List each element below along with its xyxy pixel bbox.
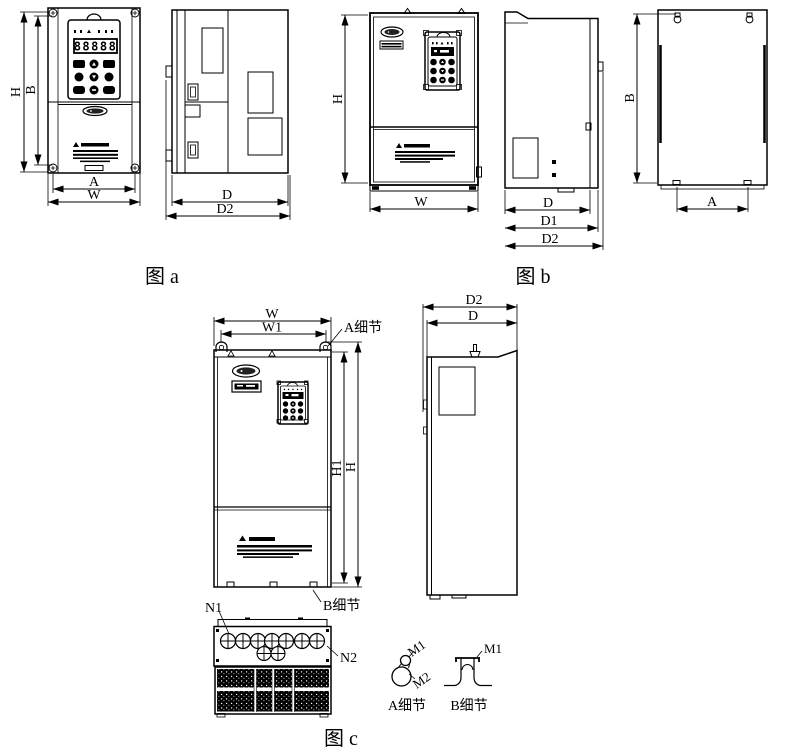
dimension-drawing-page: 88888: [0, 0, 788, 754]
dim-label-h1: H1: [330, 459, 345, 476]
inverter-dimension-drawing: 88888: [0, 0, 788, 754]
warning-triangle-icon: [239, 536, 246, 542]
warning-triangle-icon: [73, 142, 79, 147]
dim-label-a: A: [707, 195, 718, 210]
mounting-tab: [166, 150, 172, 161]
status-led-row: [74, 30, 113, 34]
dim-label-b: B: [24, 85, 39, 94]
keypad-buttons: [283, 401, 303, 420]
dim-label-h: H: [9, 87, 24, 97]
terminal-block: [215, 667, 331, 717]
dim-label-h: H: [331, 94, 346, 104]
gland-label-n1: N1: [205, 601, 222, 616]
dim-b-front-W: W: [370, 192, 478, 212]
figure-c-side-view: D2 D: [423, 293, 517, 599]
detail-b-caption: B细节: [450, 698, 487, 714]
brand-logo: [83, 107, 107, 116]
gland-label-n2: N2: [340, 651, 357, 666]
keypad: 88888: [68, 14, 120, 99]
brand-logo: [233, 365, 260, 377]
side-label-plate: [248, 72, 273, 113]
keypad-buttons: [430, 59, 455, 84]
keypad: [424, 31, 462, 91]
display-digits: 88888: [74, 40, 118, 54]
vent-grille: [202, 28, 223, 73]
dim-label-w: W: [414, 195, 428, 210]
mounting-tab: [166, 66, 172, 77]
detail-a-caption: A细节: [388, 698, 426, 714]
dim-label-h: H: [344, 462, 359, 472]
heatsink-grille: [439, 367, 475, 415]
figure-c-front-view: W W1 A细节 H1 H B细节: [214, 307, 382, 614]
warning-label: [73, 142, 118, 162]
dim-c-front-W1: W1: [221, 321, 326, 344]
keyhole-mount: [674, 13, 681, 23]
warning-label: [237, 536, 312, 558]
dim-b-back-A: A: [677, 187, 748, 212]
detail-b-callout: B细节: [323, 598, 360, 614]
dim-label-d: D: [222, 188, 232, 203]
detail-a-callout: A细节: [344, 320, 382, 336]
dim-label-b: B: [623, 93, 638, 102]
detail-a-keyhole: M1 M2 A细节: [388, 637, 433, 714]
dim-label-d: D: [543, 196, 553, 211]
keyhole-mount: [746, 13, 753, 23]
nameplate: [380, 41, 403, 49]
vent-grille: [513, 138, 538, 178]
figure-c-bottom-view: N1 N2: [205, 601, 357, 717]
n2-leader-line: [327, 646, 338, 656]
side-port: [188, 142, 198, 158]
warning-triangle-icon: [396, 143, 402, 148]
keypad: [277, 381, 308, 424]
dim-b-back-B: B: [623, 14, 676, 183]
detail-a-leader-line: [328, 329, 342, 346]
figure-a-caption: 图 a: [145, 266, 179, 288]
side-port: [188, 84, 198, 100]
lifting-eye: [470, 345, 480, 358]
dim-c-side-D: D: [427, 309, 517, 357]
warning-label: [395, 143, 455, 163]
brand-logo: [381, 27, 403, 37]
cable-glands: [221, 634, 325, 661]
figure-b-side-view: D D1 D2: [505, 12, 603, 250]
detail-b-leader-line: [313, 590, 321, 602]
figure-a-side-view: D D2: [166, 10, 290, 220]
dim-label-d: D: [468, 309, 478, 324]
detail-b-label-m1: M1: [484, 641, 502, 656]
figure-b: H W D: [331, 9, 767, 289]
dim-label-w: W: [87, 188, 101, 203]
figure-c-caption: 图 c: [324, 728, 358, 750]
keypad-buttons: [73, 60, 115, 95]
bottom-port-cover: [85, 166, 103, 171]
figure-b-front-view: H W: [331, 9, 482, 213]
vent-grille: [248, 118, 282, 155]
dim-label-d2: D2: [465, 293, 482, 308]
dim-label-d2: D2: [216, 202, 233, 217]
dim-label-d1: D1: [540, 214, 557, 229]
dim-label-w1: W1: [262, 321, 282, 336]
dim-label-d2: D2: [541, 232, 558, 247]
dim-b-front-H: H: [331, 15, 368, 183]
detail-a-label-m2: M2: [410, 669, 433, 692]
figure-b-back-view: B A: [623, 10, 767, 212]
dim-b-side-D: D: [505, 190, 590, 214]
detail-b-slot: M1 B细节: [444, 641, 502, 714]
nameplate: [232, 381, 261, 392]
figure-c: W W1 A细节 H1 H B细节: [205, 293, 517, 750]
figure-b-caption: 图 b: [516, 266, 551, 288]
figure-a-front-view: 88888: [9, 8, 140, 206]
figure-a: 88888: [9, 8, 290, 288]
